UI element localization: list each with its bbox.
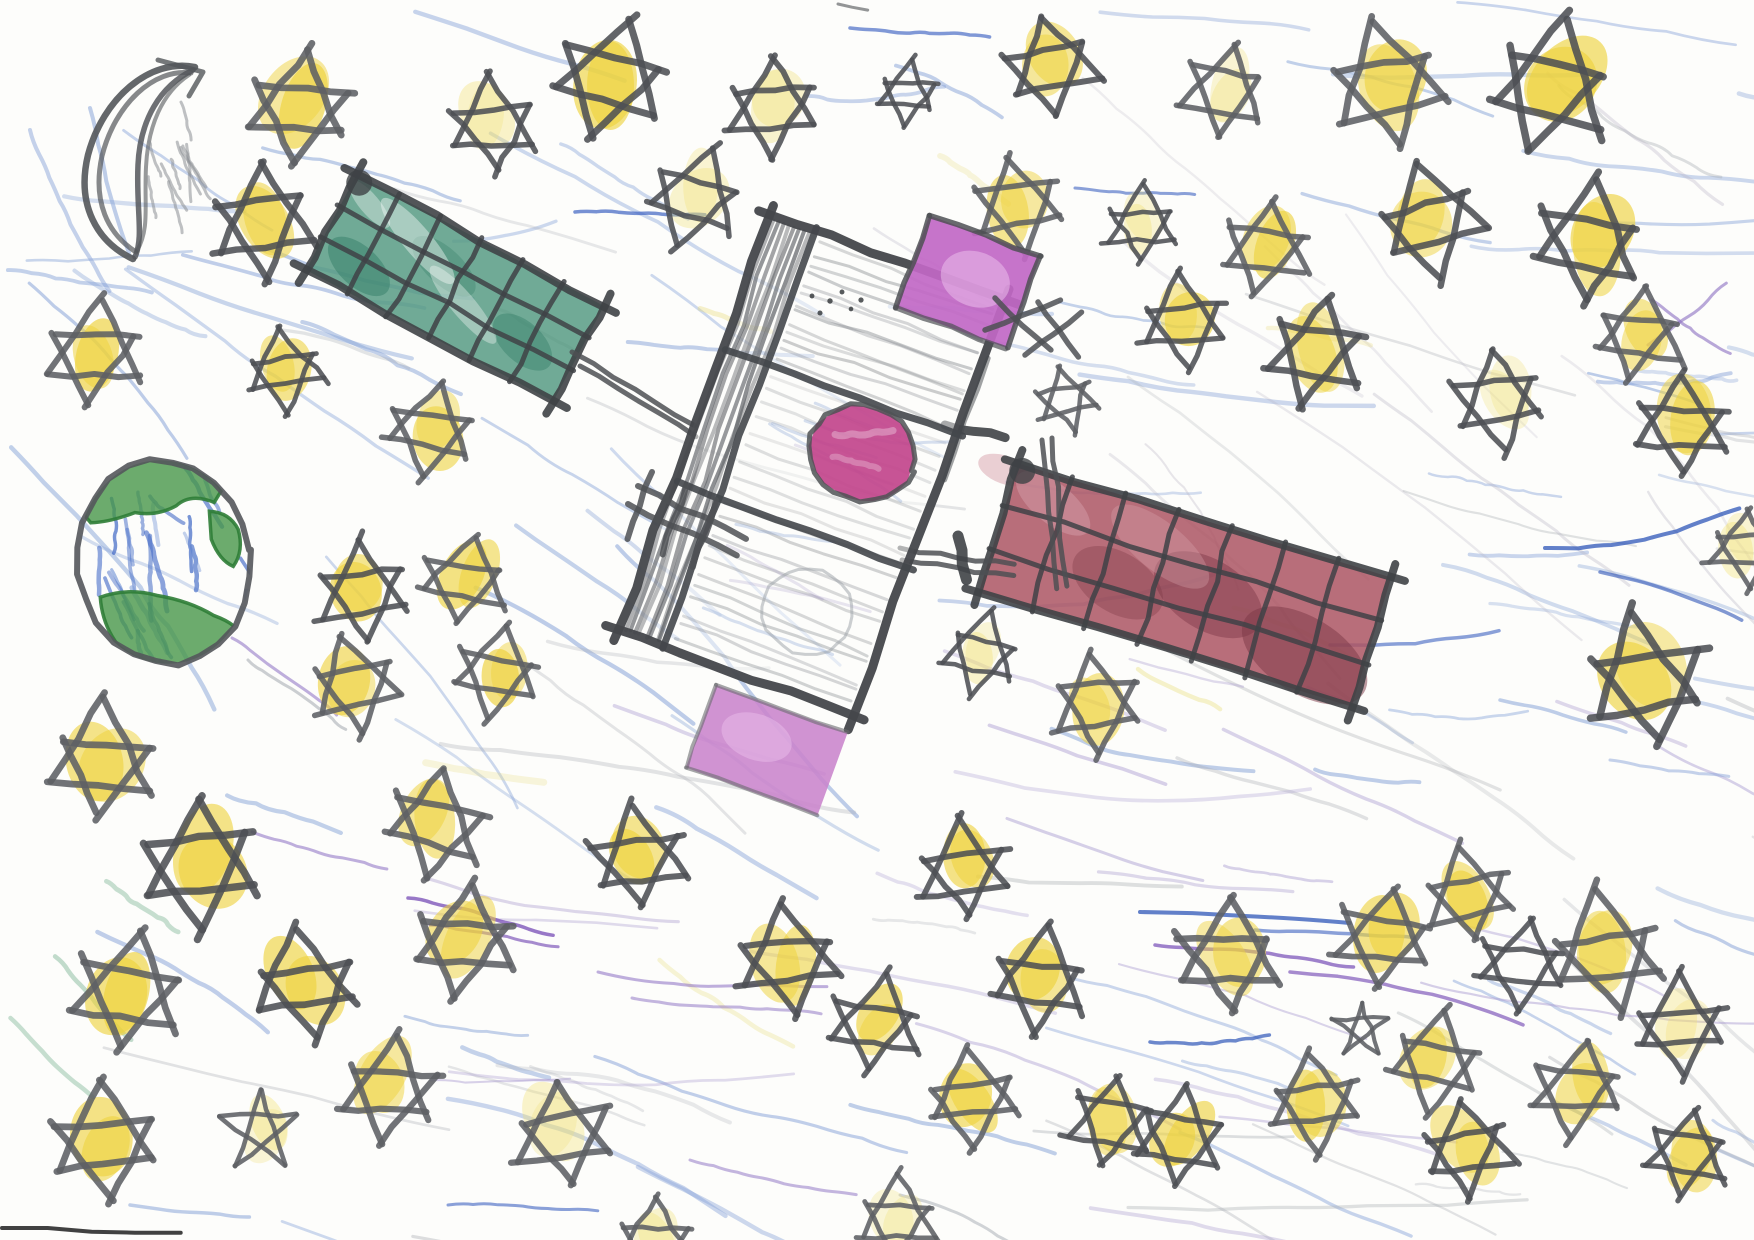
- satellite-drawing-svg: [0, 0, 1754, 1240]
- drawing: [0, 0, 1754, 1240]
